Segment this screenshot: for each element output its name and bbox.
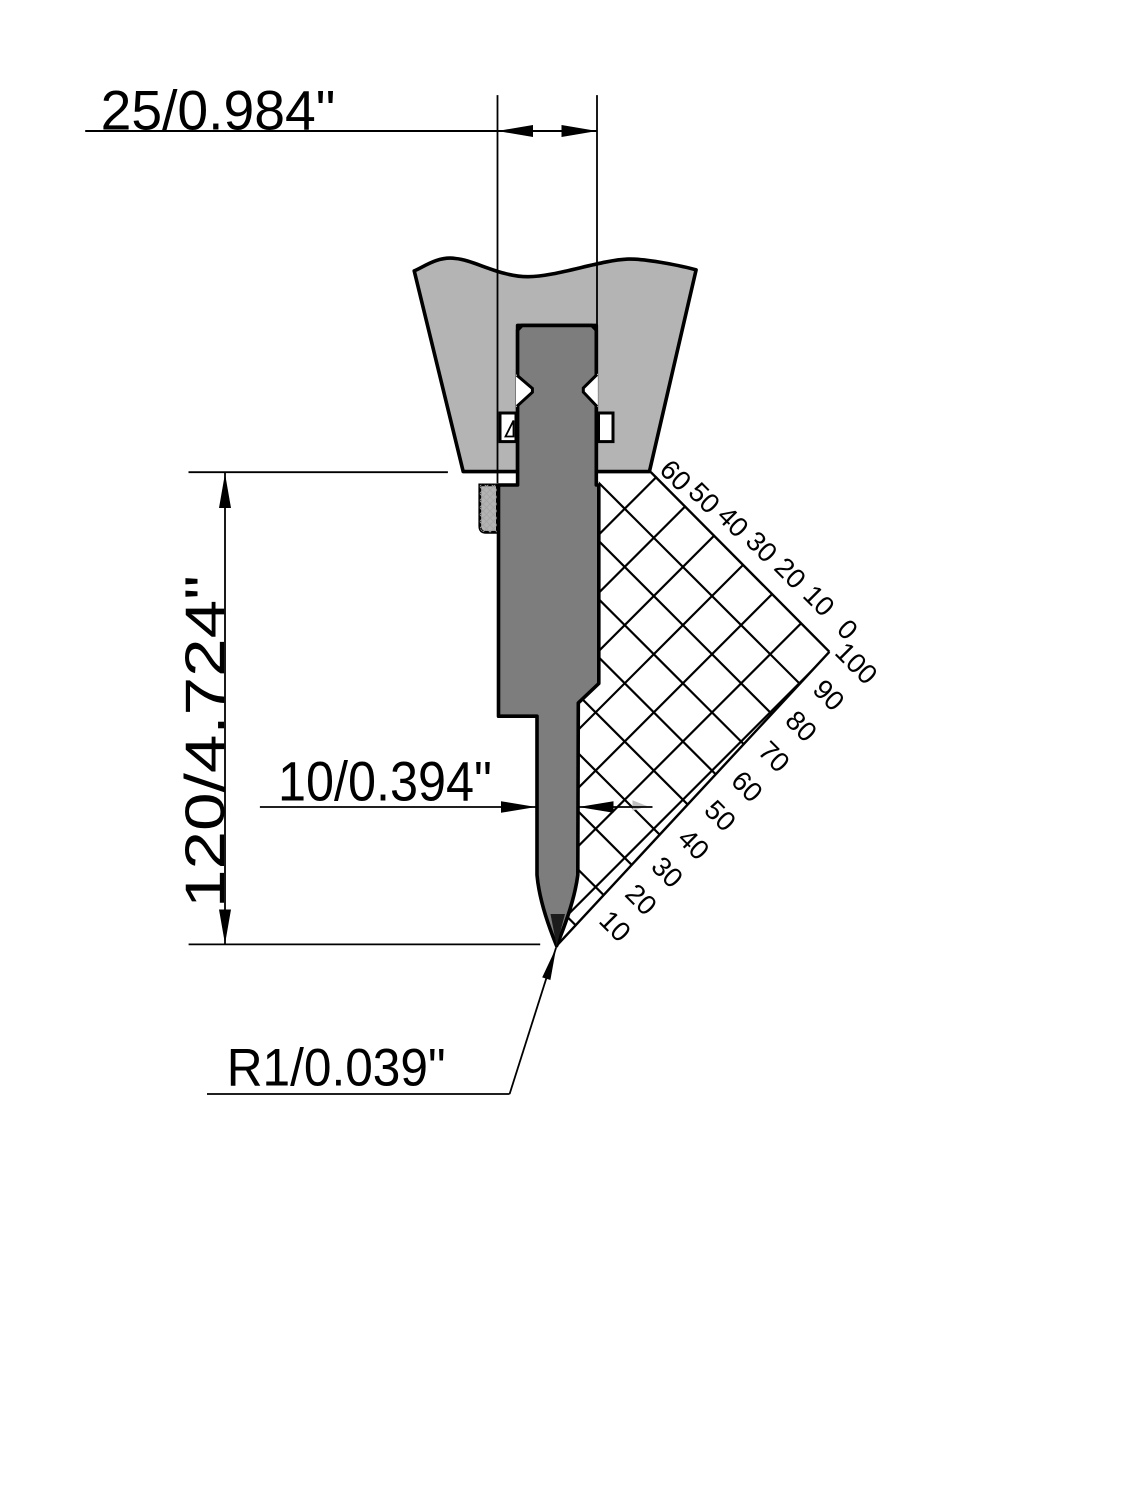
- svg-text:120/4.724": 120/4.724": [173, 575, 236, 908]
- svg-text:25/0.984": 25/0.984": [101, 79, 336, 142]
- svg-text:R1/0.039": R1/0.039": [227, 1038, 446, 1097]
- svg-text:10/0.394": 10/0.394": [278, 750, 492, 813]
